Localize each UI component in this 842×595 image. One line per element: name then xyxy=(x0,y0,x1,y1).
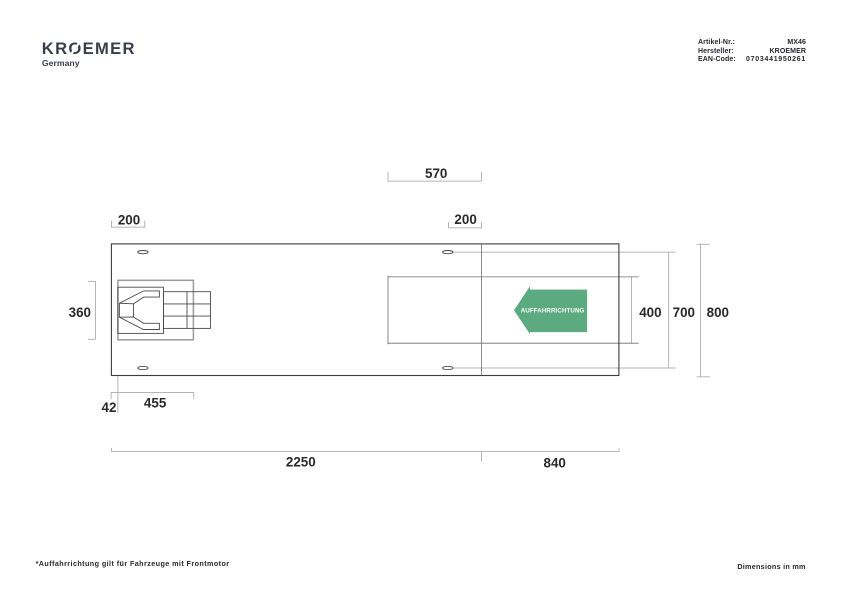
svg-text:42: 42 xyxy=(102,400,117,415)
svg-text:2250: 2250 xyxy=(286,455,316,470)
svg-text:700: 700 xyxy=(673,305,695,320)
svg-text:AUFFAHRRICHTUNG: AUFFAHRRICHTUNG xyxy=(521,308,585,315)
svg-text:570: 570 xyxy=(425,166,447,181)
svg-text:200: 200 xyxy=(118,212,140,227)
svg-text:455: 455 xyxy=(144,395,167,410)
svg-text:360: 360 xyxy=(69,305,91,320)
svg-text:200: 200 xyxy=(454,212,476,227)
svg-text:800: 800 xyxy=(707,305,729,320)
svg-text:840: 840 xyxy=(544,455,566,470)
svg-text:400: 400 xyxy=(639,305,661,320)
